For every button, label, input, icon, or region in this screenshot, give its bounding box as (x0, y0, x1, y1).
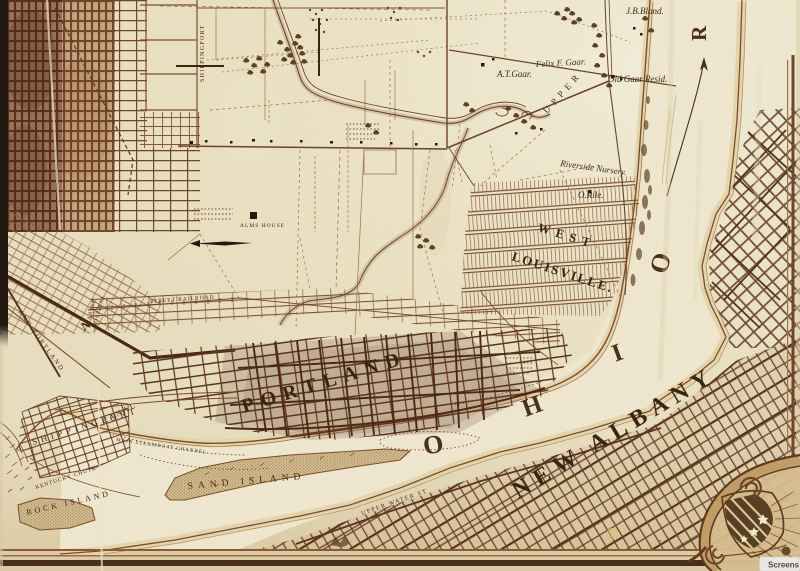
svg-text:O.Rile.: O.Rile. (578, 190, 604, 200)
svg-text:J.B.Bland.: J.B.Bland. (626, 6, 664, 16)
svg-text:Old Gaar Resid.: Old Gaar Resid. (608, 74, 667, 84)
svg-text:SHIPPINGPORT: SHIPPINGPORT (200, 24, 206, 82)
svg-text:R: R (687, 25, 711, 41)
svg-text:A.T.Gaar.: A.T.Gaar. (496, 69, 532, 79)
svg-text:Screens: Screens (768, 561, 800, 570)
svg-text:ALMS HOUSE: ALMS HOUSE (240, 223, 285, 229)
